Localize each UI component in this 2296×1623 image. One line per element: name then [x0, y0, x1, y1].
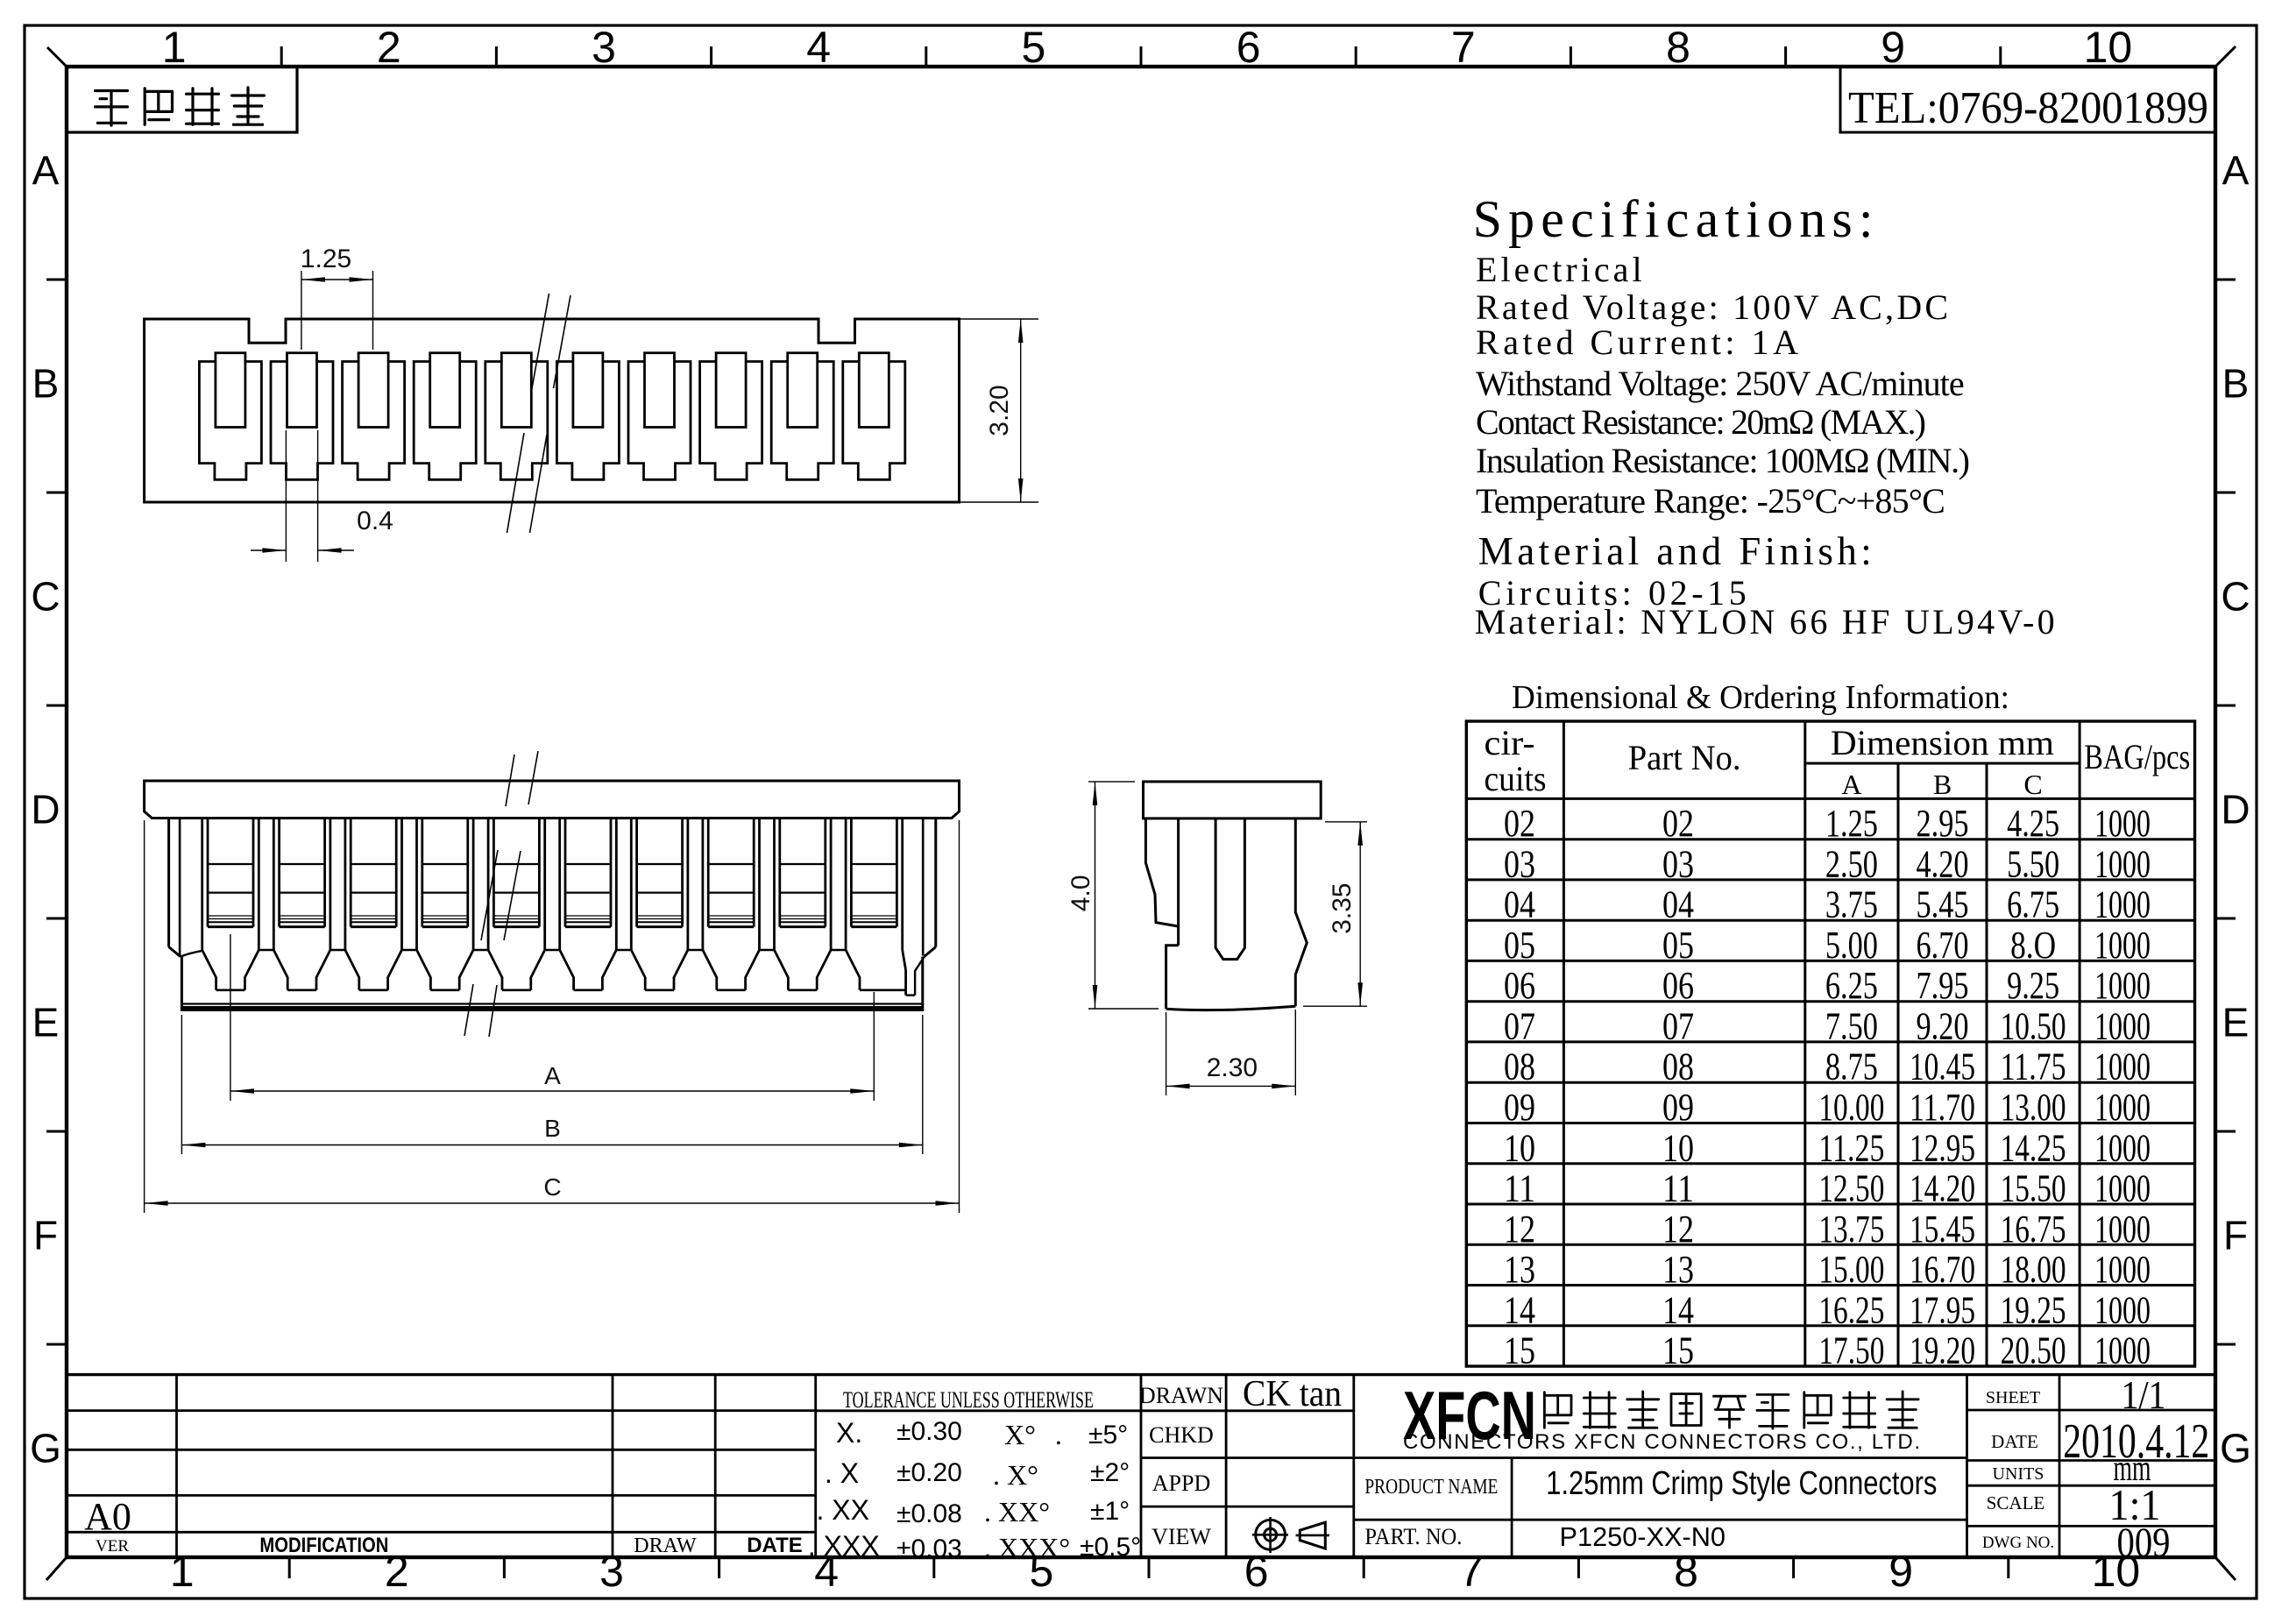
svg-text:13.75: 13.75 — [1818, 1208, 1884, 1251]
svg-text:06: 06 — [1662, 964, 1694, 1007]
svg-text:1: 1 — [162, 23, 187, 72]
svg-text:15: 15 — [1504, 1329, 1535, 1372]
svg-text:SHEET: SHEET — [1986, 1388, 2040, 1407]
svg-text:1/1: 1/1 — [2122, 1373, 2166, 1417]
svg-text:G: G — [30, 1426, 61, 1471]
svg-text:G: G — [2220, 1426, 2251, 1471]
svg-text:5.00: 5.00 — [1825, 924, 1878, 967]
svg-text:6.25: 6.25 — [1825, 964, 1878, 1007]
svg-text:±0.20: ±0.20 — [896, 1458, 962, 1487]
svg-text:7.95: 7.95 — [1917, 964, 1969, 1007]
svg-text:A: A — [1841, 769, 1861, 800]
svg-text:17.95: 17.95 — [1910, 1288, 1975, 1331]
svg-text:11.75: 11.75 — [2001, 1045, 2066, 1088]
svg-text:. XXX°: . XXX° — [984, 1532, 1070, 1563]
svg-text:TOLERANCE UNLESS OTHERWISE: TOLERANCE UNLESS OTHERWISE — [843, 1387, 1094, 1413]
svg-text:08: 08 — [1504, 1045, 1535, 1088]
svg-text:10.00: 10.00 — [1818, 1086, 1884, 1129]
svg-text:±0.08: ±0.08 — [896, 1499, 962, 1528]
svg-text:12: 12 — [1504, 1208, 1535, 1251]
svg-text:MODIFICATION: MODIFICATION — [259, 1534, 388, 1557]
svg-text:CHKD: CHKD — [1149, 1422, 1214, 1448]
svg-text:DATE: DATE — [747, 1534, 803, 1557]
svg-text:Specifications:: Specifications: — [1473, 190, 1874, 248]
svg-text:5.45: 5.45 — [1917, 883, 1969, 926]
svg-text:cir-: cir- — [1485, 723, 1535, 762]
svg-text:20.50: 20.50 — [2001, 1329, 2066, 1372]
svg-text:E: E — [2222, 1000, 2250, 1045]
svg-text:6: 6 — [1244, 1547, 1269, 1596]
svg-text:Dimensional & Ordering Informa: Dimensional & Ordering Information: — [1512, 679, 2009, 716]
svg-text:16.75: 16.75 — [2001, 1208, 2066, 1251]
svg-text:1000: 1000 — [2094, 1208, 2151, 1251]
svg-text:Insulation Resistance: 100MΩ (: Insulation Resistance: 100MΩ (MIN.) — [1476, 441, 1970, 480]
svg-text:10: 10 — [1504, 1126, 1535, 1169]
svg-text:B: B — [2222, 361, 2250, 407]
svg-text:15: 15 — [1662, 1329, 1694, 1372]
svg-text:17.50: 17.50 — [1818, 1329, 1884, 1372]
svg-text:DRAWN: DRAWN — [1139, 1383, 1223, 1408]
svg-text:8: 8 — [1674, 1547, 1698, 1596]
svg-text:8.75: 8.75 — [1825, 1045, 1878, 1088]
svg-text:±1°: ±1° — [1090, 1497, 1130, 1526]
svg-text:P1250-XX-N0: P1250-XX-N0 — [1560, 1521, 1726, 1552]
svg-text:1000: 1000 — [2094, 964, 2151, 1007]
svg-text:1000: 1000 — [2094, 883, 2151, 926]
svg-text:Material: NYLON 66 HF UL94V-0: Material: NYLON 66 HF UL94V-0 — [1475, 602, 2055, 641]
svg-text:7.50: 7.50 — [1825, 1005, 1878, 1048]
svg-text:2.50: 2.50 — [1825, 843, 1878, 886]
svg-text:±5°: ±5° — [1088, 1421, 1128, 1449]
svg-text:. XX°: . XX° — [984, 1496, 1050, 1527]
svg-text:X° .: X° . — [1004, 1419, 1062, 1450]
svg-text:1000: 1000 — [2094, 924, 2151, 967]
svg-text:4: 4 — [806, 23, 831, 72]
svg-text:12.95: 12.95 — [1910, 1126, 1975, 1169]
svg-text:3.35: 3.35 — [1328, 882, 1357, 933]
svg-text:Temperature Range: -25°C~+85°C: Temperature Range: -25°C~+85°C — [1476, 481, 1945, 521]
svg-text:12: 12 — [1662, 1208, 1694, 1251]
svg-text:Dimension mm: Dimension mm — [1831, 723, 2054, 762]
svg-text:CK tan: CK tan — [1243, 1374, 1342, 1414]
svg-text:DATE: DATE — [1991, 1431, 2038, 1452]
svg-text:11: 11 — [1504, 1167, 1535, 1210]
svg-text:8: 8 — [1666, 23, 1690, 72]
svg-text:7: 7 — [1459, 1547, 1484, 1596]
svg-text:02: 02 — [1504, 802, 1535, 845]
svg-text:PRODUCT NAME: PRODUCT NAME — [1364, 1476, 1498, 1499]
svg-text:19.20: 19.20 — [1910, 1329, 1975, 1372]
svg-text:1000: 1000 — [2094, 1329, 2151, 1372]
svg-text:VER: VER — [96, 1537, 129, 1556]
svg-text:9: 9 — [1881, 23, 1905, 72]
svg-text:15.50: 15.50 — [2001, 1167, 2066, 1210]
svg-text:1.25: 1.25 — [1825, 802, 1878, 845]
svg-text:9: 9 — [1889, 1547, 1913, 1596]
svg-text:1000: 1000 — [2094, 1248, 2151, 1291]
svg-text:. XXX: . XXX — [808, 1530, 880, 1562]
svg-text:DRAW: DRAW — [634, 1534, 697, 1557]
svg-text:1: 1 — [170, 1547, 195, 1596]
svg-text:1000: 1000 — [2094, 843, 2151, 886]
svg-text:1.25: 1.25 — [301, 245, 351, 273]
svg-text:TEL:0769-82001899: TEL:0769-82001899 — [1848, 83, 2208, 133]
svg-text:6: 6 — [1237, 23, 1261, 72]
svg-text:Withstand Voltage: 250V AC/min: Withstand Voltage: 250V AC/minute — [1476, 364, 1965, 403]
svg-text:1000: 1000 — [2094, 802, 2151, 845]
svg-text:3.20: 3.20 — [985, 385, 1014, 436]
svg-text:18.00: 18.00 — [2001, 1248, 2066, 1291]
svg-text:B: B — [32, 361, 60, 407]
svg-text:C: C — [2221, 574, 2250, 620]
svg-text:B: B — [544, 1115, 561, 1142]
svg-text:9.20: 9.20 — [1917, 1005, 1969, 1048]
svg-text:02: 02 — [1662, 802, 1694, 845]
svg-text:BAG/pcs: BAG/pcs — [2084, 737, 2190, 776]
svg-text:C: C — [31, 574, 60, 620]
svg-text:009: 009 — [2117, 1520, 2171, 1566]
svg-text:2: 2 — [377, 23, 401, 72]
svg-text:. X°: . X° — [993, 1459, 1038, 1491]
svg-text:10: 10 — [2084, 23, 2133, 72]
svg-text:13.00: 13.00 — [2001, 1086, 2066, 1129]
svg-text:09: 09 — [1504, 1086, 1535, 1129]
svg-text:cuits: cuits — [1485, 759, 1547, 798]
svg-text:3: 3 — [592, 23, 616, 72]
svg-text:CONNECTORS XFCN CONNECTORS CO.: CONNECTORS XFCN CONNECTORS CO., LTD. — [1403, 1430, 1920, 1454]
svg-text:5: 5 — [1021, 23, 1045, 72]
svg-text:14.25: 14.25 — [2001, 1126, 2066, 1169]
svg-text:04: 04 — [1504, 883, 1535, 926]
svg-text:C: C — [2023, 769, 2042, 800]
svg-text:5.50: 5.50 — [2007, 843, 2059, 886]
svg-text:E: E — [32, 1000, 60, 1045]
svg-text:F: F — [2223, 1213, 2248, 1258]
svg-text:13: 13 — [1504, 1248, 1535, 1291]
svg-text:Part No.: Part No. — [1628, 738, 1741, 777]
svg-text:2.30: 2.30 — [1207, 1053, 1258, 1082]
svg-text:C: C — [543, 1173, 561, 1201]
svg-text:Rated Voltage: 100V AC,DC: Rated Voltage: 100V AC,DC — [1476, 287, 1948, 327]
svg-text:6.75: 6.75 — [2007, 883, 2059, 926]
svg-text:11.70: 11.70 — [1910, 1086, 1975, 1129]
svg-text:Contact Resistance: 20mΩ (MAX.: Contact Resistance: 20mΩ (MAX.) — [1476, 402, 1926, 442]
svg-text:1.25mm Crimp Style Connectors: 1.25mm Crimp Style Connectors — [1546, 1465, 1937, 1502]
svg-text:06: 06 — [1504, 964, 1535, 1007]
svg-text:6.70: 6.70 — [1917, 924, 1969, 967]
svg-text:1000: 1000 — [2094, 1126, 2151, 1169]
svg-text:4.0: 4.0 — [1067, 875, 1095, 911]
svg-text:PART. NO.: PART. NO. — [1364, 1524, 1462, 1549]
svg-text:10.50: 10.50 — [2001, 1005, 2066, 1048]
svg-text:11.25: 11.25 — [1818, 1126, 1884, 1169]
svg-text:16.25: 16.25 — [1818, 1288, 1884, 1331]
svg-text:1000: 1000 — [2094, 1086, 2151, 1129]
svg-text:03: 03 — [1662, 843, 1694, 886]
svg-text:UNITS: UNITS — [1993, 1464, 2044, 1484]
svg-text:±2°: ±2° — [1090, 1458, 1130, 1487]
svg-text:. X: . X — [825, 1457, 859, 1489]
svg-text:05: 05 — [1662, 924, 1694, 967]
svg-text:4.25: 4.25 — [2007, 802, 2059, 845]
svg-text:14.20: 14.20 — [1910, 1167, 1975, 1210]
svg-text:15.00: 15.00 — [1818, 1248, 1884, 1291]
svg-text:04: 04 — [1662, 883, 1694, 926]
svg-text:±0.5°: ±0.5° — [1080, 1533, 1141, 1562]
svg-text:APPD: APPD — [1152, 1471, 1210, 1496]
svg-text:1000: 1000 — [2094, 1005, 2151, 1048]
svg-text:0.4: 0.4 — [357, 507, 393, 535]
svg-text:9.25: 9.25 — [2007, 964, 2059, 1007]
svg-text:A: A — [544, 1062, 561, 1089]
svg-text:16.70: 16.70 — [1910, 1248, 1975, 1291]
svg-text:19.25: 19.25 — [2001, 1288, 2066, 1331]
svg-text:1000: 1000 — [2094, 1167, 2151, 1210]
svg-text:B: B — [1933, 769, 1952, 800]
svg-text:05: 05 — [1504, 924, 1535, 967]
svg-text:3.75: 3.75 — [1825, 883, 1878, 926]
svg-text:SCALE: SCALE — [1987, 1492, 2045, 1513]
svg-text:1000: 1000 — [2094, 1045, 2151, 1088]
svg-text:12.50: 12.50 — [1818, 1167, 1884, 1210]
svg-text:10.45: 10.45 — [1910, 1045, 1975, 1088]
svg-text:8.O: 8.O — [2010, 924, 2056, 967]
svg-text:2.95: 2.95 — [1917, 802, 1969, 845]
svg-text:14: 14 — [1504, 1288, 1535, 1331]
svg-text:7: 7 — [1451, 23, 1476, 72]
svg-text:A0: A0 — [84, 1495, 131, 1538]
svg-text:D: D — [2221, 787, 2250, 833]
svg-text:F: F — [33, 1213, 58, 1258]
svg-text:VIEW: VIEW — [1152, 1524, 1211, 1549]
svg-text:4.20: 4.20 — [1917, 843, 1969, 886]
svg-text:09: 09 — [1662, 1086, 1694, 1129]
svg-text:11: 11 — [1662, 1167, 1694, 1210]
svg-text:±0.03: ±0.03 — [896, 1534, 962, 1563]
svg-text:D: D — [31, 787, 60, 833]
svg-text:. XX: . XX — [817, 1494, 869, 1526]
svg-text:A: A — [2222, 148, 2250, 194]
svg-text:±0.30: ±0.30 — [896, 1417, 962, 1446]
svg-text:X.: X. — [836, 1417, 862, 1449]
svg-text:A: A — [32, 148, 60, 194]
svg-text:DWG NO.: DWG NO. — [1982, 1534, 2054, 1552]
svg-text:07: 07 — [1662, 1005, 1694, 1048]
svg-text:07: 07 — [1504, 1005, 1535, 1048]
svg-text:1000: 1000 — [2094, 1288, 2151, 1331]
svg-text:08: 08 — [1662, 1045, 1694, 1088]
svg-text:13: 13 — [1662, 1248, 1694, 1291]
svg-text:15.45: 15.45 — [1910, 1208, 1975, 1251]
svg-text:10: 10 — [1662, 1126, 1694, 1169]
svg-text:03: 03 — [1504, 843, 1535, 886]
svg-text:14: 14 — [1662, 1288, 1694, 1331]
svg-text:Electrical: Electrical — [1476, 250, 1642, 289]
